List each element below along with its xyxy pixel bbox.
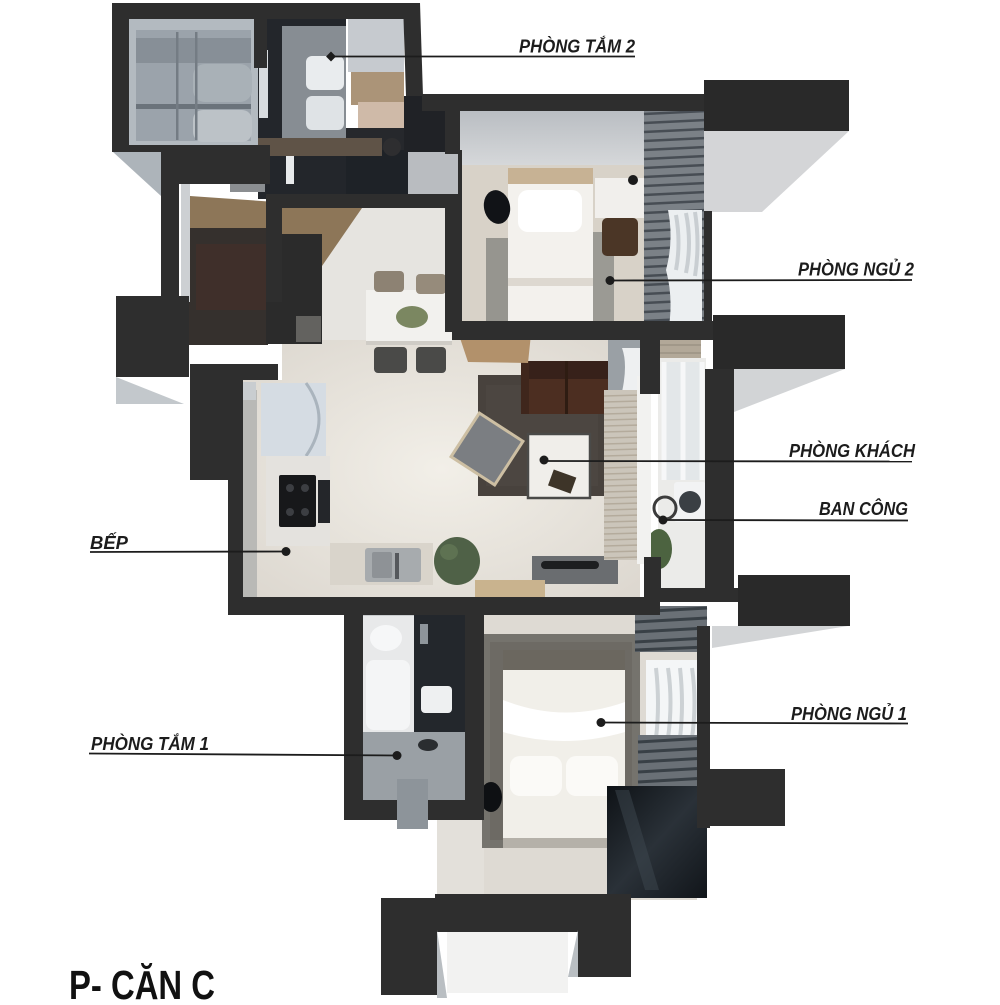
- svg-text:PHÒNG KHÁCH: PHÒNG KHÁCH: [789, 440, 916, 461]
- svg-text:BẾP: BẾP: [90, 532, 129, 553]
- svg-text:P- CĂN C: P- CĂN C: [69, 962, 215, 1000]
- svg-text:PHÒNG TẮM 2: PHÒNG TẮM 2: [519, 36, 635, 57]
- svg-text:PHÒNG TẮM 1: PHÒNG TẮM 1: [91, 733, 209, 754]
- svg-text:PHÒNG NGỦ 2: PHÒNG NGỦ 2: [798, 259, 914, 280]
- svg-text:PHÒNG NGỦ 1: PHÒNG NGỦ 1: [791, 703, 907, 724]
- svg-text:BAN CÔNG: BAN CÔNG: [819, 498, 908, 519]
